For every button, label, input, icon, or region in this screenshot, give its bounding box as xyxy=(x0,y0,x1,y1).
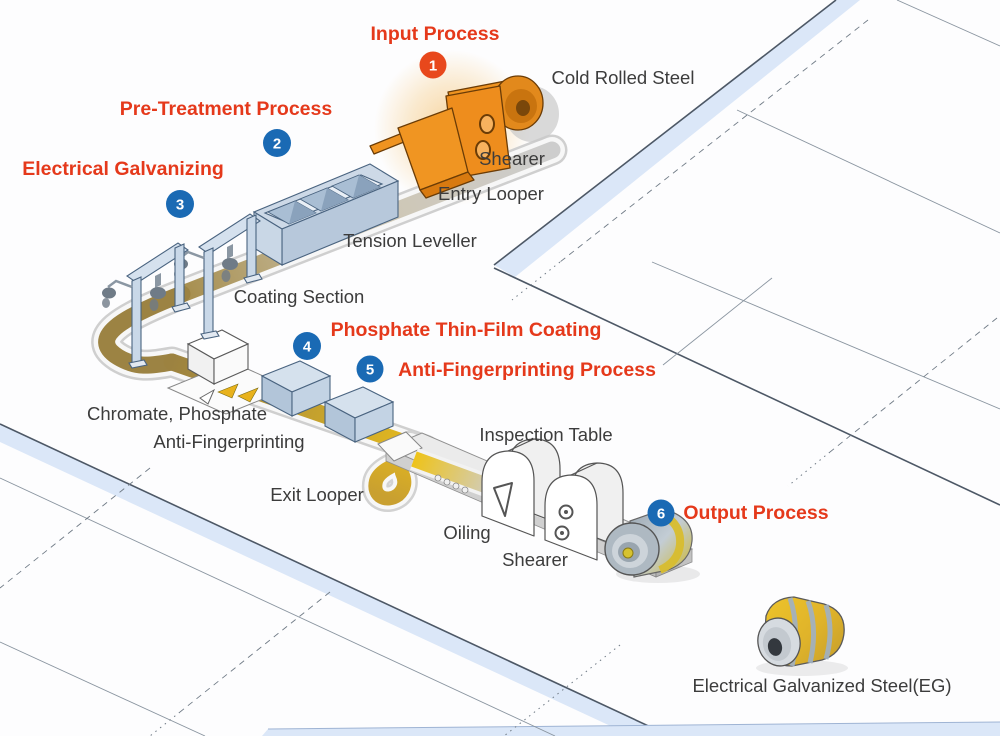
grid-line xyxy=(0,478,555,736)
step-badge-6-number: 6 xyxy=(657,506,665,523)
sprayer-nozzle xyxy=(150,287,166,299)
label-anti-fingerprinting: Anti-Fingerprinting xyxy=(153,431,304,452)
step-badge-6: 6 xyxy=(648,500,675,527)
step-label-electrical-galvanizing: Electrical Galvanizing xyxy=(22,158,224,180)
step-badge-3-number: 3 xyxy=(176,197,184,214)
step-label-anti-fingerprinting: Anti-Fingerprinting Process xyxy=(398,359,656,381)
step-badge-1: 1 xyxy=(420,52,447,79)
label-shearer-exit: Shearer xyxy=(502,549,568,570)
sprayer-nozzle xyxy=(222,258,238,270)
label-exit-looper: Exit Looper xyxy=(270,484,364,505)
label-cold-rolled-steel: Cold Rolled Steel xyxy=(552,67,695,88)
eg-coil xyxy=(753,597,848,676)
grid-line xyxy=(663,278,772,365)
label-entry-looper: Entry Looper xyxy=(438,183,544,204)
grid-line-dashed xyxy=(180,592,330,712)
step-badge-5-number: 5 xyxy=(366,362,374,379)
grid-line-dotted xyxy=(788,452,830,486)
grid-line-dotted xyxy=(150,712,180,736)
gantry-near-post xyxy=(204,248,213,338)
step-label-output-process: Output Process xyxy=(683,502,828,524)
grid-line xyxy=(737,110,1000,233)
step-badge-3: 3 xyxy=(166,190,194,218)
sprayer-arm xyxy=(155,273,161,288)
sprayer-nozzle xyxy=(102,288,116,299)
step-label-input-process: Input Process xyxy=(371,23,500,45)
galvanizing-process-diagram: 1 2 3 4 5 6 Input Process Pre-Treatment … xyxy=(0,0,1000,736)
step-badge-2-number: 2 xyxy=(273,136,281,153)
grid-line xyxy=(494,268,1000,505)
step-badge-5: 5 xyxy=(357,356,384,383)
step-badge-4-number: 4 xyxy=(303,339,312,356)
label-tension-leveller: Tension Leveller xyxy=(343,230,477,251)
step-badge-1-number: 1 xyxy=(429,58,437,75)
grid-line-dashed xyxy=(560,20,868,262)
uncoiler-hole xyxy=(480,115,494,133)
grid-line-dashed xyxy=(830,318,997,452)
coil-core xyxy=(623,548,633,558)
step-label-pre-treatment: Pre-Treatment Process xyxy=(120,98,333,120)
grid-line xyxy=(0,642,205,736)
sprayer-mist xyxy=(150,299,159,311)
label-chromate-phosphate: Chromate, Phosphate xyxy=(87,403,267,424)
grid-line xyxy=(897,0,1000,46)
label-coating-section: Coating Section xyxy=(234,286,365,307)
sprayer-side-arm xyxy=(108,281,132,287)
step-badge-4: 4 xyxy=(293,332,321,360)
process-diagram-page: 1 2 3 4 5 6 Input Process Pre-Treatment … xyxy=(0,0,1000,736)
label-inspection-table: Inspection Table xyxy=(479,424,612,445)
sprayer-arm xyxy=(227,244,233,259)
sprayer-mist xyxy=(222,270,231,282)
gantry-near-post xyxy=(132,277,141,367)
floor-band-bottom-edge xyxy=(0,424,670,736)
grid-line xyxy=(652,262,1000,409)
gantry-far-post xyxy=(247,215,256,282)
label-oiling: Oiling xyxy=(443,522,490,543)
step-label-phosphate-coating: Phosphate Thin-Film Coating xyxy=(331,319,602,341)
gantry-far-post xyxy=(175,244,184,311)
label-shearer-entry: Shearer xyxy=(479,148,545,169)
sprayer-mist xyxy=(102,298,110,308)
label-eg-steel: Electrical Galvanized Steel(EG) xyxy=(692,675,951,696)
step-badge-2: 2 xyxy=(263,129,291,157)
